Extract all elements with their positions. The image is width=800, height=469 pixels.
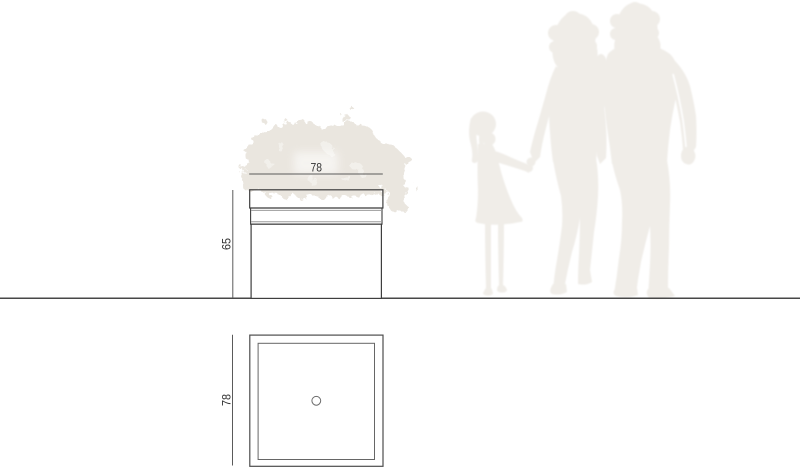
svg-text:78: 78 [220,394,234,406]
svg-text:78: 78 [311,160,323,174]
svg-text:65: 65 [220,238,234,250]
